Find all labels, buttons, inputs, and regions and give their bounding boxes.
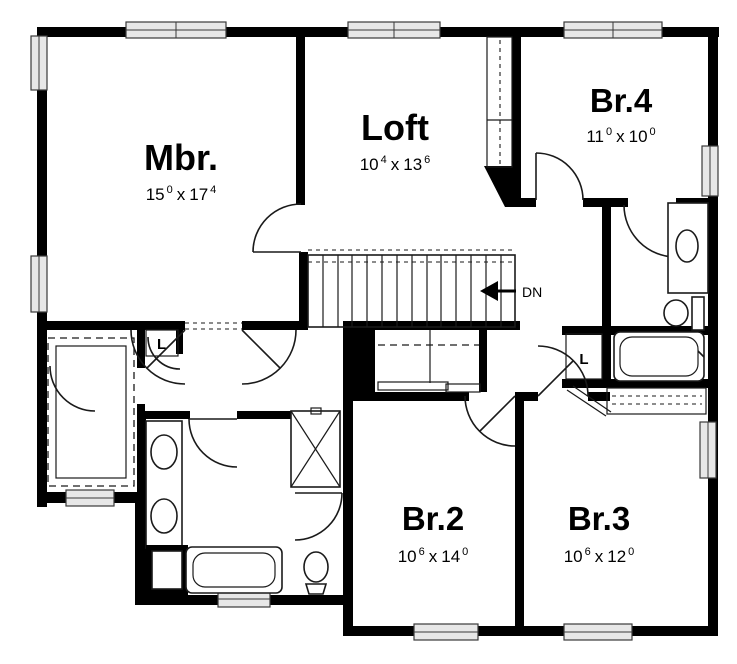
room-label-br3: Br.3 (568, 500, 630, 537)
room-dim-br2: 106x140 (398, 546, 469, 566)
room-label-br2: Br.2 (402, 500, 464, 537)
room-label-br4: Br.4 (590, 82, 653, 119)
door-mbr (253, 204, 301, 252)
room-dim-mbr: 150x174 (146, 184, 217, 204)
window (414, 624, 478, 640)
window (126, 22, 226, 38)
sink-icon (676, 230, 698, 262)
sink-icon (151, 435, 177, 469)
angled-wall (484, 166, 521, 207)
window (564, 22, 662, 38)
stair-treads (323, 255, 501, 327)
door-hall-right (242, 330, 296, 384)
stairs: DN (308, 250, 542, 327)
door-wic (50, 366, 95, 411)
window (31, 36, 47, 90)
window (348, 22, 440, 38)
door-master-bath (189, 419, 237, 467)
room-label-mbr: Mbr. (144, 137, 218, 178)
toilet-icon (664, 297, 704, 330)
bathtub-icon (614, 332, 704, 381)
chase (487, 37, 512, 167)
double-vanity (146, 421, 182, 548)
stairs-direction-label: DN (522, 284, 542, 300)
floor-plan: DN L L (0, 0, 737, 664)
br2-closet (378, 330, 480, 392)
floor-plan-canvas: DN L L (0, 0, 737, 664)
door-br4 (536, 153, 583, 200)
toilet-icon (304, 552, 328, 594)
master-bath-fixtures (146, 408, 340, 595)
hall-bath-fixtures (614, 203, 708, 381)
shower-icon (291, 408, 340, 487)
room-dim-br3: 106x120 (564, 546, 635, 566)
bypass-door (378, 382, 448, 390)
linen-closet-right: L (566, 334, 602, 379)
walk-in-closet (48, 338, 134, 486)
window (700, 422, 716, 478)
linen-label: L (579, 351, 588, 368)
vanity (668, 203, 708, 293)
bathtub-icon (186, 547, 282, 593)
window (564, 624, 632, 640)
closet-shelf-line (56, 346, 126, 478)
window (31, 256, 47, 312)
tub-niche (152, 551, 182, 589)
window (702, 146, 718, 196)
room-dim-loft: 104x136 (360, 154, 431, 174)
door-bath-compartment (295, 493, 342, 540)
sink-icon (151, 499, 177, 533)
door-br2 (465, 396, 515, 446)
bypass-door (446, 384, 480, 392)
room-dim-br4: 110x100 (586, 126, 655, 146)
window (66, 490, 114, 506)
room-label-loft: Loft (361, 107, 429, 148)
closet-shelf-dashed (48, 338, 134, 486)
